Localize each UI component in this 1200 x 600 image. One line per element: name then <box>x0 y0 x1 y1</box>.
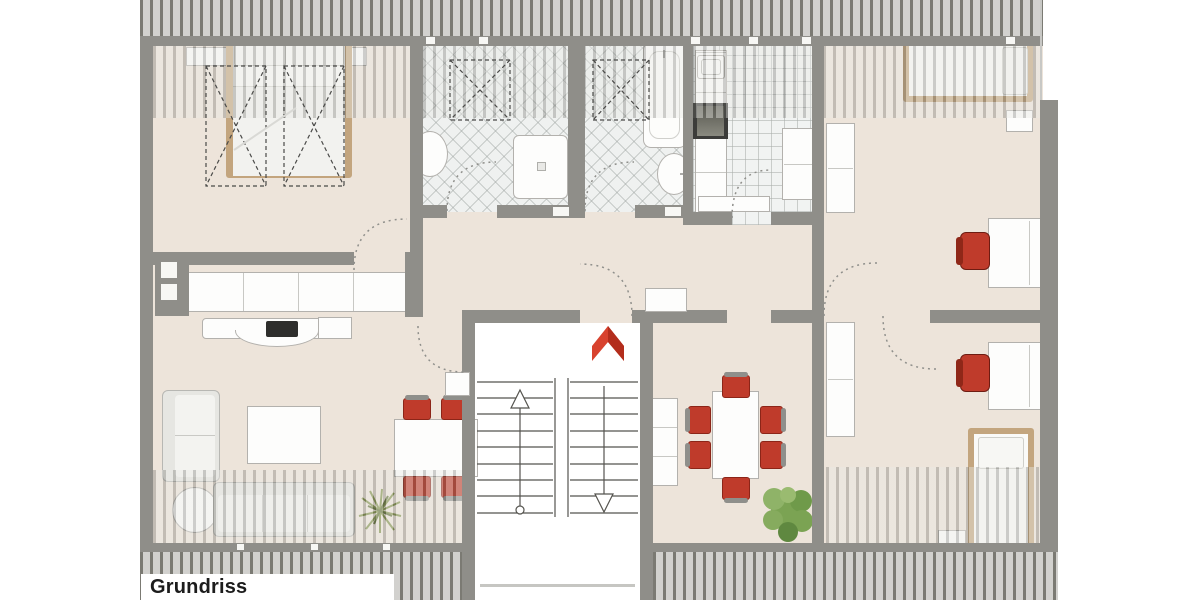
chimney-flue <box>161 262 177 278</box>
desk-divider <box>1029 221 1030 285</box>
bed-duvet <box>233 86 345 176</box>
dining-chair <box>760 441 783 469</box>
wall-dining-top <box>771 310 824 323</box>
coffee-table <box>247 406 321 464</box>
wall-exterior-left <box>140 36 153 552</box>
roof-hatch-top <box>140 0 1043 36</box>
hall-wardrobe <box>826 322 855 437</box>
dining-chair <box>688 406 711 434</box>
sofa-two-seat-cushions <box>175 395 215 477</box>
wall-corner-block <box>405 252 423 317</box>
wall-shelf <box>645 288 687 312</box>
desk-top-right <box>988 218 1043 288</box>
wall-stair-top-left <box>462 310 580 323</box>
knee-wall-post <box>311 544 318 550</box>
bathtub-basin <box>649 51 680 139</box>
wall-kitchen-bottom-left <box>683 212 732 225</box>
wall-bath1-stub <box>423 205 447 218</box>
kitchen-sink <box>697 55 725 79</box>
desk-divider-2 <box>1029 345 1030 407</box>
single-bed-pillow <box>1002 47 1028 95</box>
wall-gable-edge <box>1040 0 1042 100</box>
wall-window-mark <box>665 207 681 216</box>
bathtub <box>643 42 687 148</box>
shower-tray <box>513 135 568 199</box>
hall-wardrobe-divider <box>828 379 853 380</box>
tv <box>266 321 298 337</box>
dining-chair <box>403 398 431 420</box>
dining-chair <box>403 476 431 498</box>
wall-between-baths <box>568 46 585 205</box>
wall-bath1-bottom <box>497 205 585 218</box>
wall-window-mark <box>426 37 435 44</box>
round-table <box>172 487 218 533</box>
sideboard <box>188 272 410 312</box>
wall-window-mark <box>691 37 700 44</box>
wall-window-mark <box>802 37 811 44</box>
plan-title-text: Grundriss Dachgeschoss <box>150 576 294 600</box>
office-chair-top <box>960 232 990 270</box>
radiator <box>445 372 470 396</box>
single-bed-pillow-2 <box>978 437 1024 469</box>
wall-stairwell-left <box>462 310 475 600</box>
sofa-three-seat-cushions <box>218 495 350 532</box>
wall-stairwell-right <box>640 310 653 600</box>
wall-exterior-right <box>1040 100 1058 552</box>
wall-window-mark <box>749 37 758 44</box>
dining-table-center <box>712 391 759 479</box>
nightstand <box>1006 110 1033 132</box>
wall-bath2-kitchen <box>683 46 693 205</box>
wall-window-mark <box>479 37 488 44</box>
stove <box>693 103 728 139</box>
wardrobe-divider <box>828 168 853 169</box>
stair-threshold <box>480 584 635 587</box>
side-table <box>318 317 352 339</box>
wall-exterior-top <box>140 36 1043 46</box>
dining-chair <box>688 441 711 469</box>
wall-window-mark <box>1006 37 1015 44</box>
wardrobe <box>826 123 855 213</box>
stairwell-floor <box>475 323 640 600</box>
dining-chair <box>722 477 750 500</box>
bed-pillow-right <box>292 44 344 66</box>
plan-title-label: Grundriss Dachgeschoss <box>141 574 394 600</box>
wall-hall-left <box>812 323 824 543</box>
knee-wall-right <box>653 543 1058 552</box>
dining-cabinet <box>650 398 678 486</box>
wall-window-mark <box>553 207 569 216</box>
wall-right-rooms <box>930 310 1043 323</box>
chimney-flue <box>161 284 177 300</box>
shower-drain <box>537 162 546 171</box>
sofa-three-seat <box>213 482 355 537</box>
bed-pillow-left <box>234 44 286 66</box>
office-chair-bottom <box>960 354 990 392</box>
knee-wall-post <box>237 544 244 550</box>
kitchen-sink-basin <box>701 59 721 75</box>
desk-bottom-right <box>988 342 1043 410</box>
kitchen-lower-cabinet <box>698 196 770 212</box>
knee-wall-left <box>140 543 462 552</box>
dining-chair <box>722 375 750 398</box>
wall-kitchen-bedroom <box>812 36 824 323</box>
dining-chair <box>760 406 783 434</box>
sofa-two-seat <box>162 390 220 482</box>
stove-front <box>697 106 724 136</box>
wall-bath-left <box>410 46 423 252</box>
knee-wall-post <box>383 544 390 550</box>
floor-plan: Grundriss Dachgeschoss <box>0 0 1200 600</box>
roof-hatch-bottom-right <box>653 552 1058 600</box>
